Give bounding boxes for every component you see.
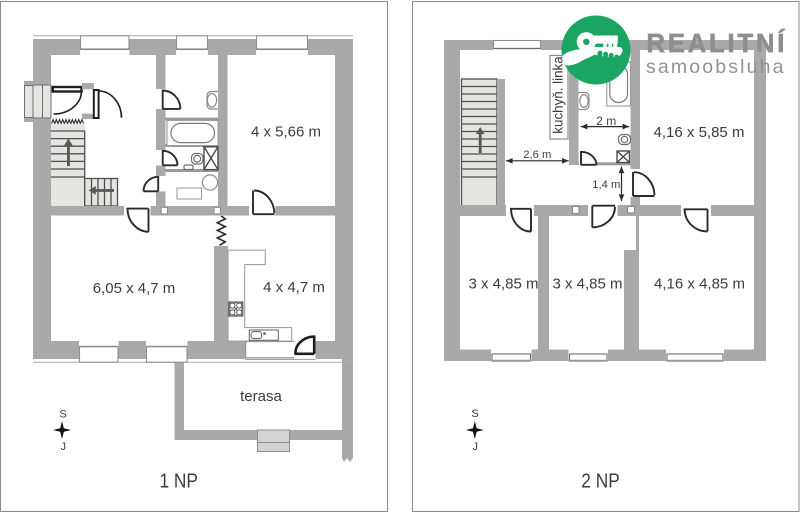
- svg-text:S: S: [59, 408, 66, 420]
- svg-text:4 x 5,66 m: 4 x 5,66 m: [251, 124, 321, 141]
- svg-text:3 x 4,85 m: 3 x 4,85 m: [468, 276, 538, 293]
- svg-text:1,4 m: 1,4 m: [592, 179, 620, 191]
- svg-text:S: S: [471, 408, 478, 420]
- svg-text:4,16 x 4,85 m: 4,16 x 4,85 m: [654, 276, 745, 293]
- svg-text:2 NP: 2 NP: [581, 469, 620, 492]
- svg-text:1 NP: 1 NP: [159, 469, 198, 492]
- svg-text:kuchyň. linka: kuchyň. linka: [550, 56, 565, 134]
- svg-text:J: J: [61, 441, 67, 453]
- svg-text:J: J: [473, 441, 479, 453]
- svg-text:terasa: terasa: [240, 388, 282, 405]
- svg-text:samoobsluha: samoobsluha: [646, 56, 786, 78]
- svg-text:4,16 x 5,85 m: 4,16 x 5,85 m: [654, 124, 745, 141]
- svg-text:6,05 x 4,7 m: 6,05 x 4,7 m: [93, 280, 176, 297]
- svg-text:4 x 4,7 m: 4 x 4,7 m: [263, 279, 325, 296]
- svg-text:2,6 m: 2,6 m: [523, 149, 551, 161]
- svg-text:2 m: 2 m: [596, 114, 616, 128]
- svg-text:3 x 4,85 m: 3 x 4,85 m: [552, 276, 622, 293]
- svg-text:REALITNÍ: REALITNÍ: [647, 29, 788, 58]
